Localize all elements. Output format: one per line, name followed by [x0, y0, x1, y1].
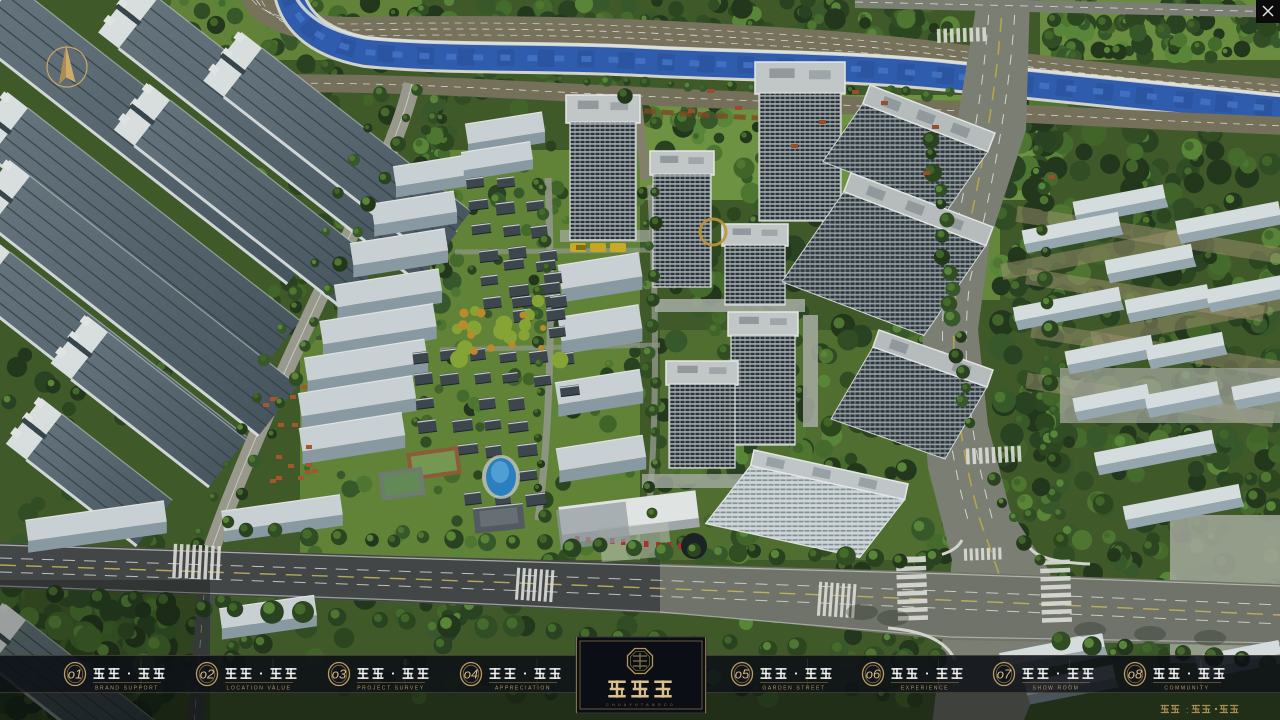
svg-text:o8: o8 — [1128, 667, 1143, 682]
svg-text:GARDEN STREET: GARDEN STREET — [762, 686, 825, 692]
svg-text::: : — [1186, 705, 1189, 715]
svg-text:PROJECT SURVEY: PROJECT SURVEY — [357, 686, 425, 692]
svg-text:o7: o7 — [997, 667, 1012, 682]
svg-text:o1: o1 — [68, 667, 82, 682]
svg-text:SHOW ROOM: SHOW ROOM — [1033, 686, 1080, 692]
svg-text:COMMUNITY: COMMUNITY — [1164, 686, 1209, 692]
svg-text:o5: o5 — [735, 667, 750, 682]
svg-text:BRAND SUPPORT: BRAND SUPPORT — [95, 686, 159, 692]
svg-text:o3: o3 — [332, 667, 347, 682]
svg-text:C H U A Y U T A N G C O: C H U A Y U T A N G C O — [606, 703, 674, 707]
svg-text:APPRECIATION: APPRECIATION — [495, 686, 551, 692]
svg-text:o2: o2 — [200, 667, 215, 682]
svg-text:EXPERIENCE: EXPERIENCE — [901, 686, 949, 692]
svg-text:LOCATION VALUE: LOCATION VALUE — [226, 686, 291, 692]
svg-text:o6: o6 — [866, 667, 881, 682]
svg-text:o4: o4 — [464, 667, 478, 682]
